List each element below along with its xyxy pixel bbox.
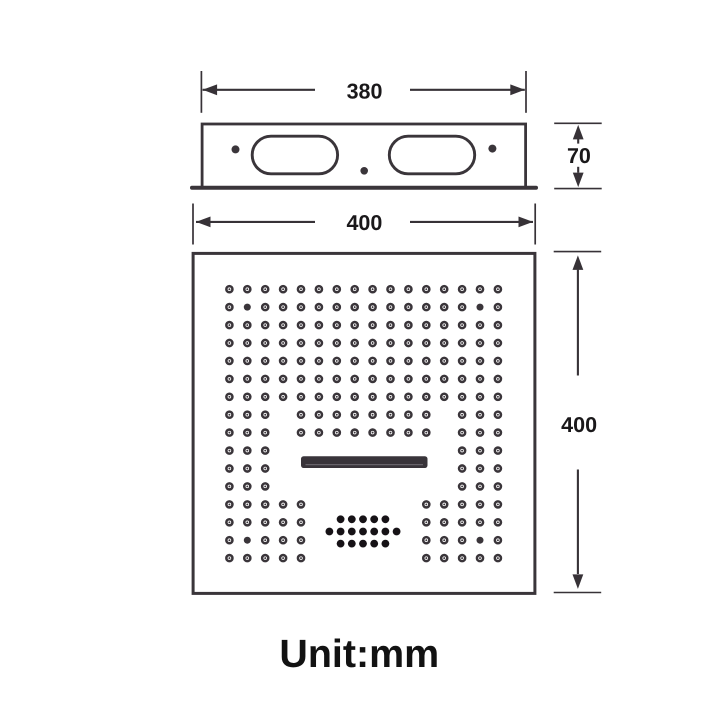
svg-text:70: 70 [567,144,591,168]
svg-text:400: 400 [561,413,597,437]
svg-text:380: 380 [347,79,383,103]
svg-text:Unit:mm: Unit:mm [279,632,439,676]
svg-text:400: 400 [346,211,382,235]
